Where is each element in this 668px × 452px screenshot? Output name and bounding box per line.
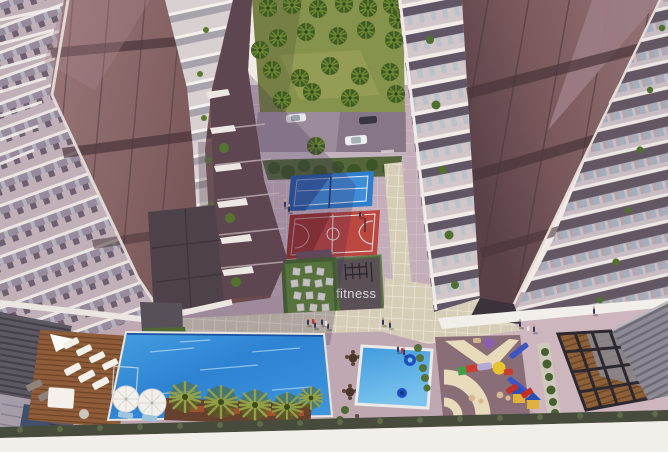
svg-text:fitness: fitness bbox=[336, 286, 376, 301]
